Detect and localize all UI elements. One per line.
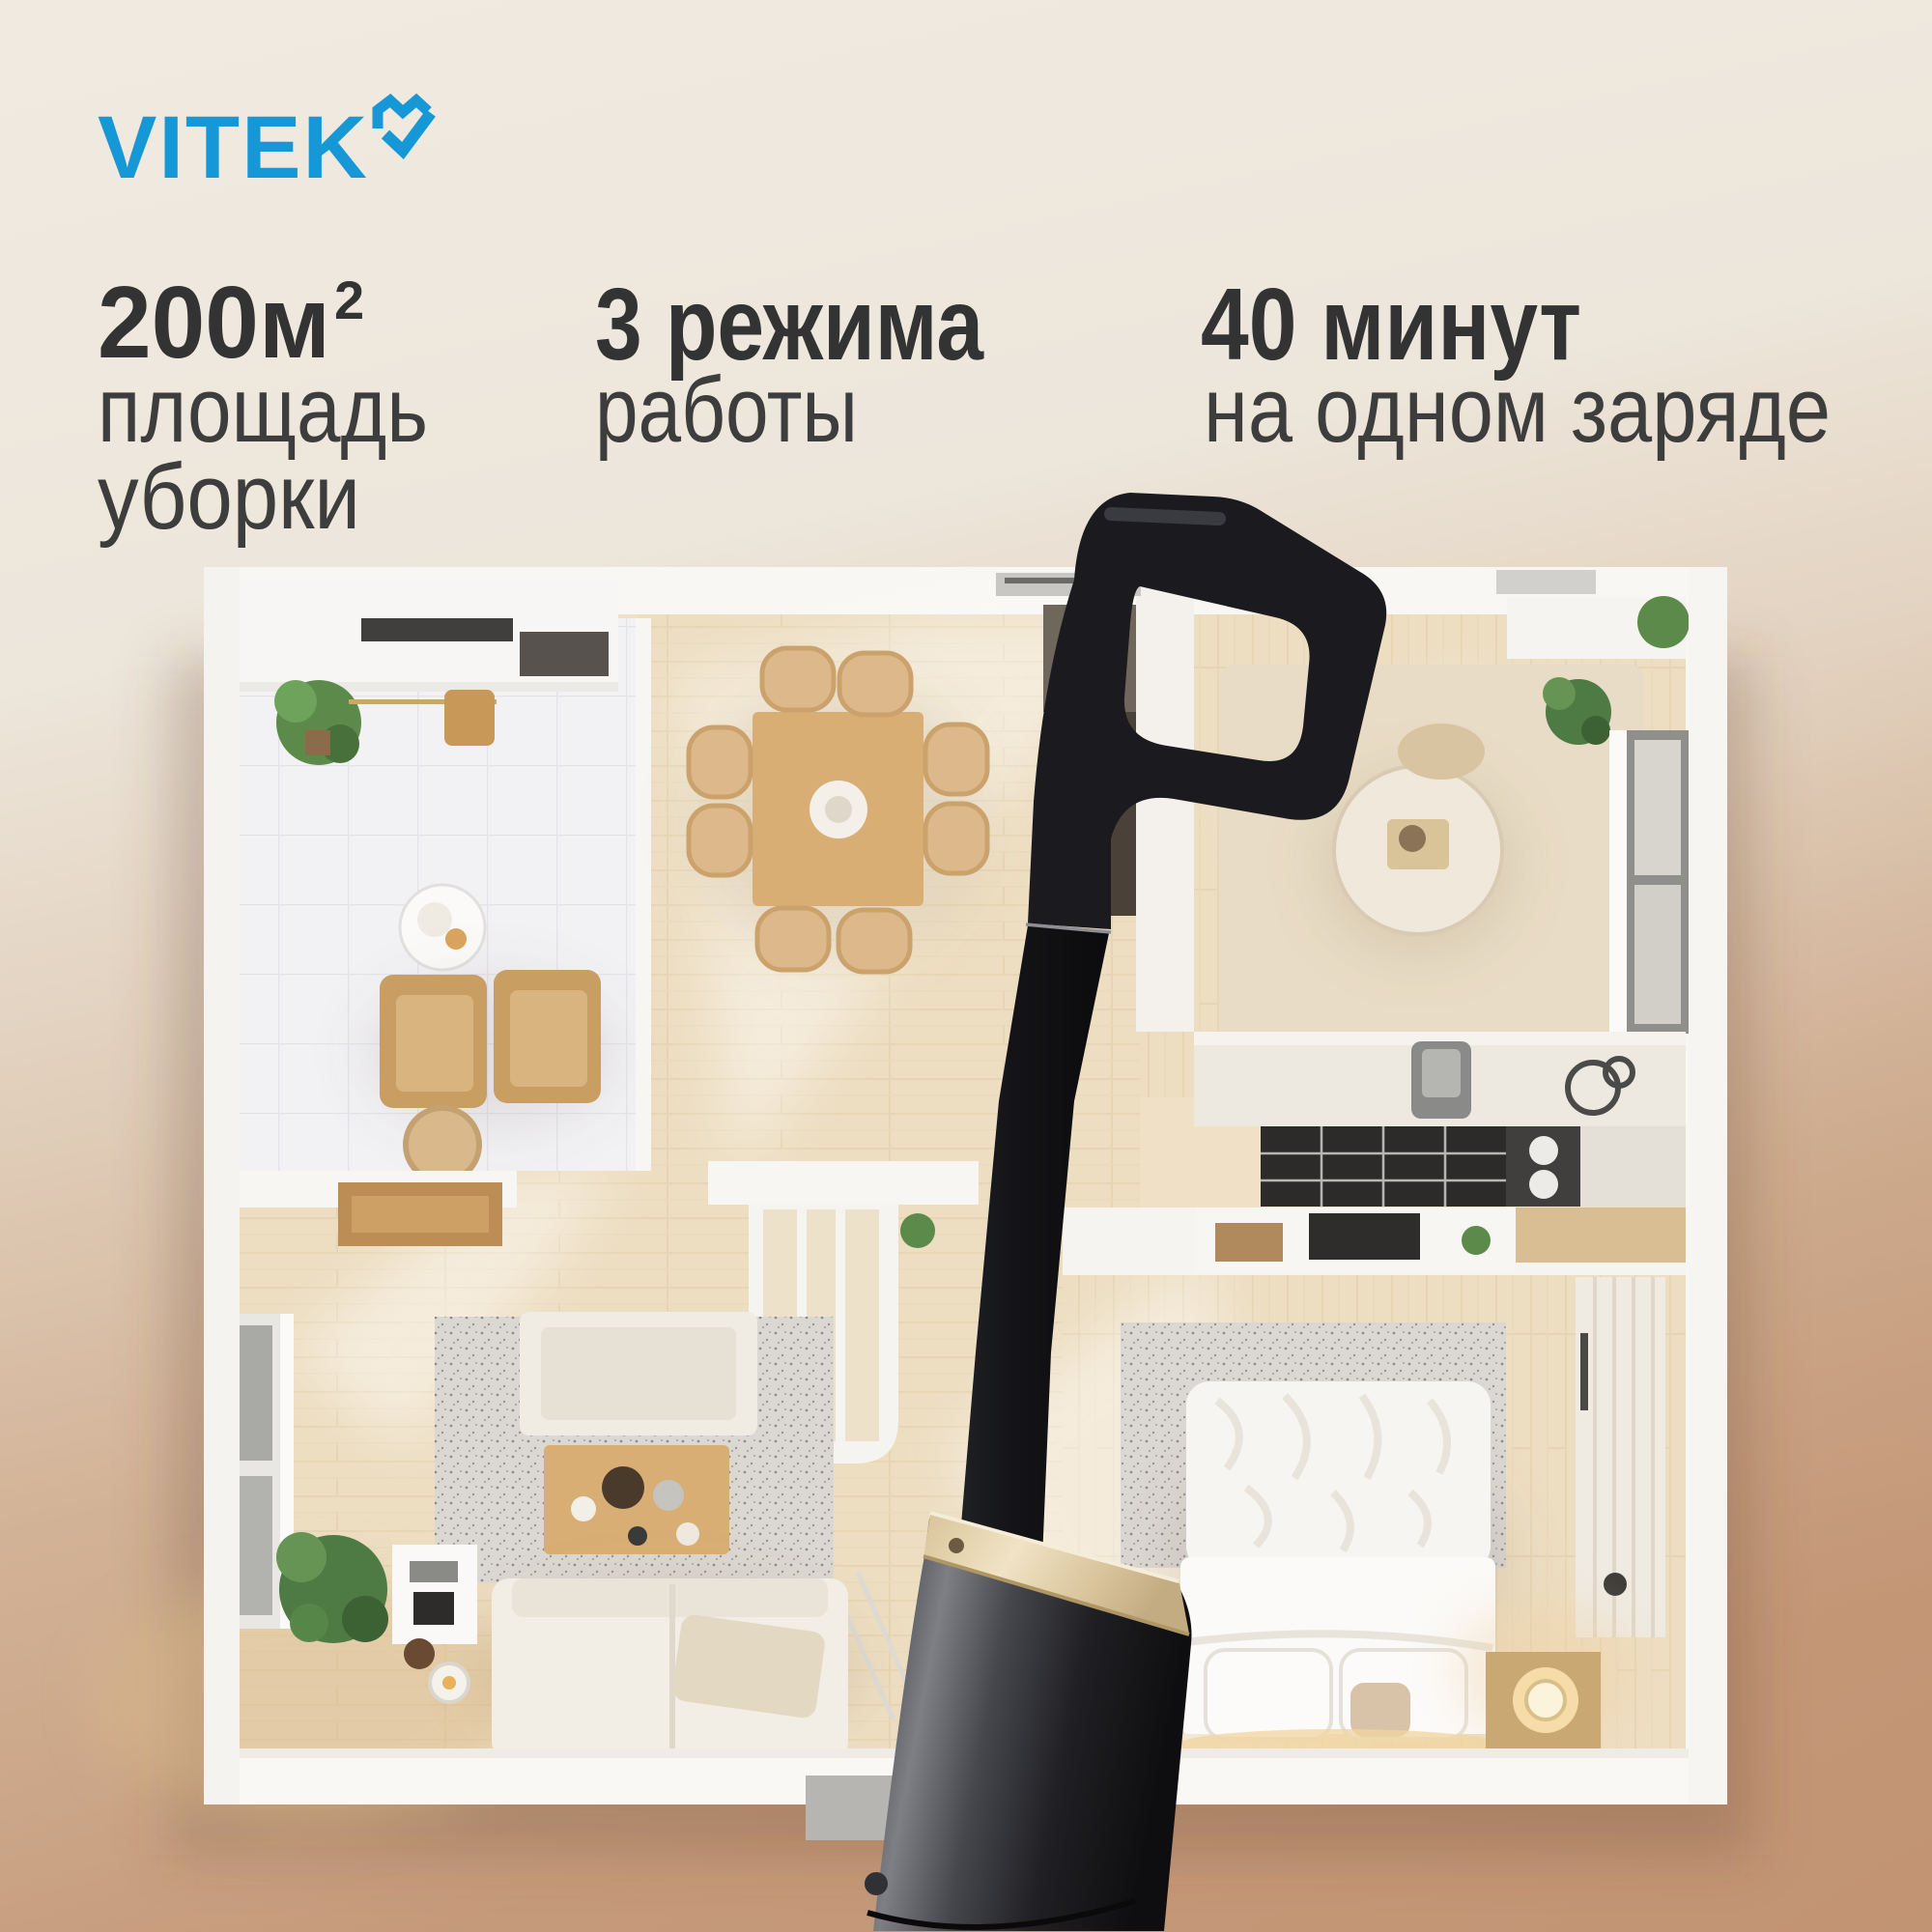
svg-text:VITEK: VITEK — [98, 99, 369, 197]
svg-text:2: 2 — [334, 270, 364, 330]
svg-text:на одном заряде: на одном заряде — [1204, 358, 1831, 462]
svg-text:уборки: уборки — [98, 445, 360, 549]
svg-text:работы: работы — [595, 358, 858, 462]
